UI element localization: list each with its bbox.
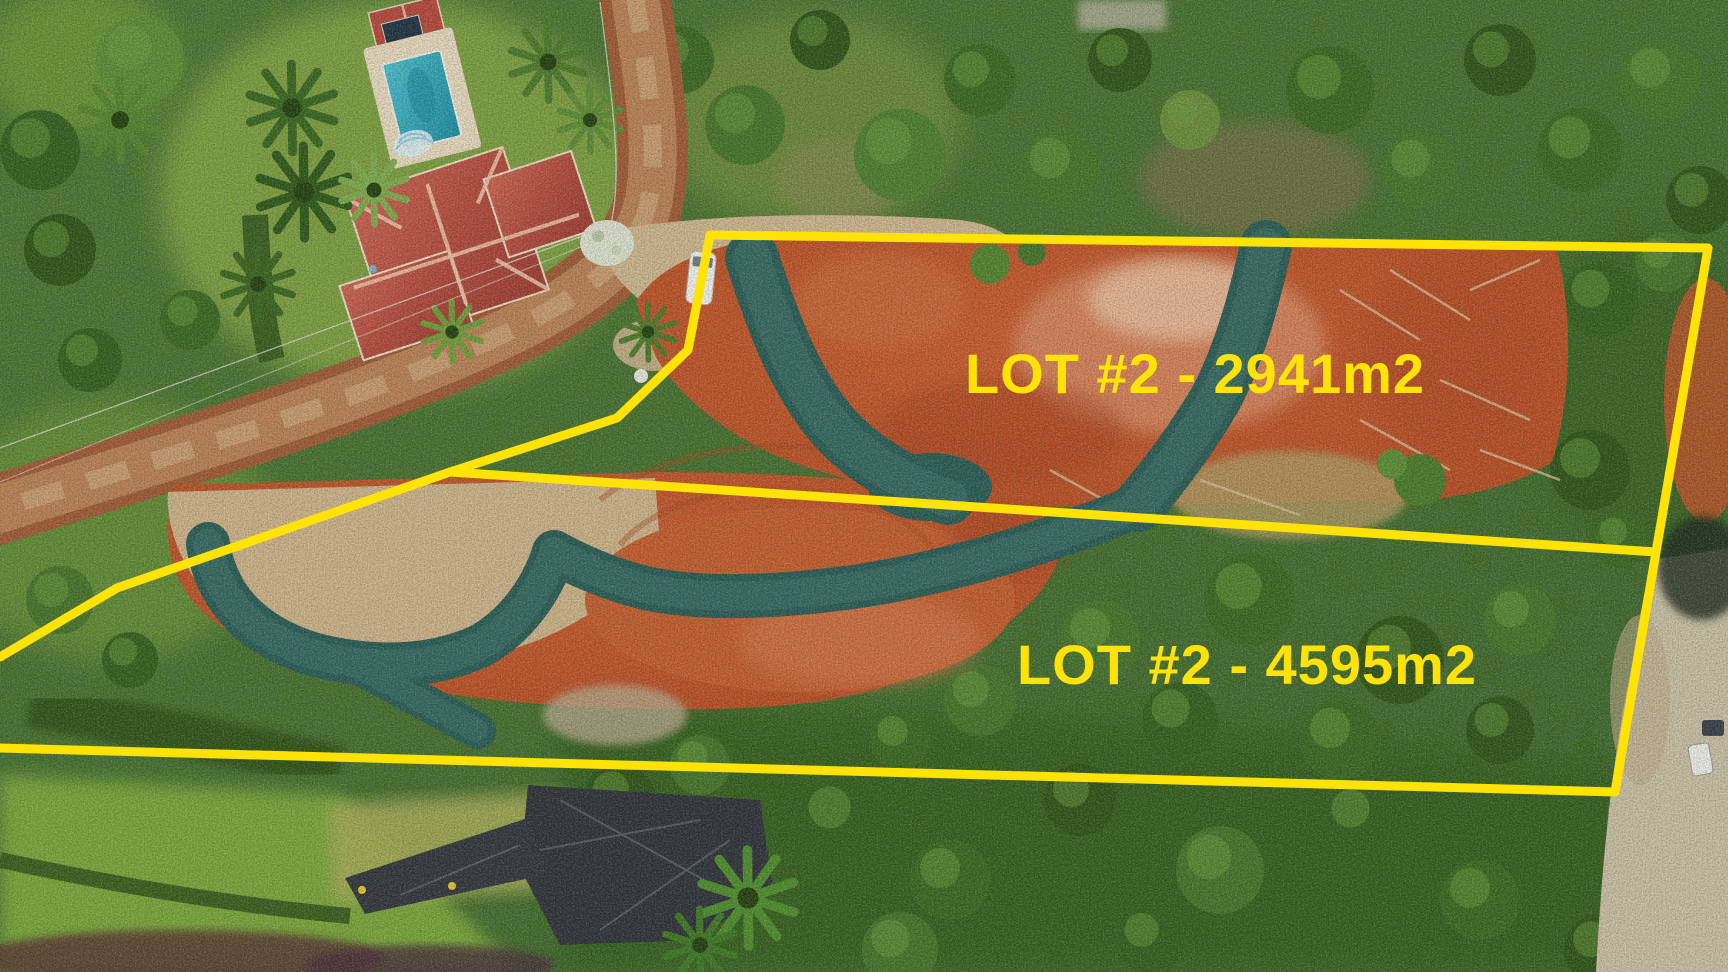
aerial-photo: LOT #2 - 2941m2 LOT #2 - 4595m2 (0, 0, 1728, 972)
grain-light (0, 0, 1728, 972)
lot-label-upper: LOT #2 - 2941m2 (965, 342, 1425, 405)
lot-label-lower: LOT #2 - 4595m2 (1017, 633, 1477, 696)
aerial-photo-stage: LOT #2 - 2941m2 LOT #2 - 4595m2 (0, 0, 1728, 972)
